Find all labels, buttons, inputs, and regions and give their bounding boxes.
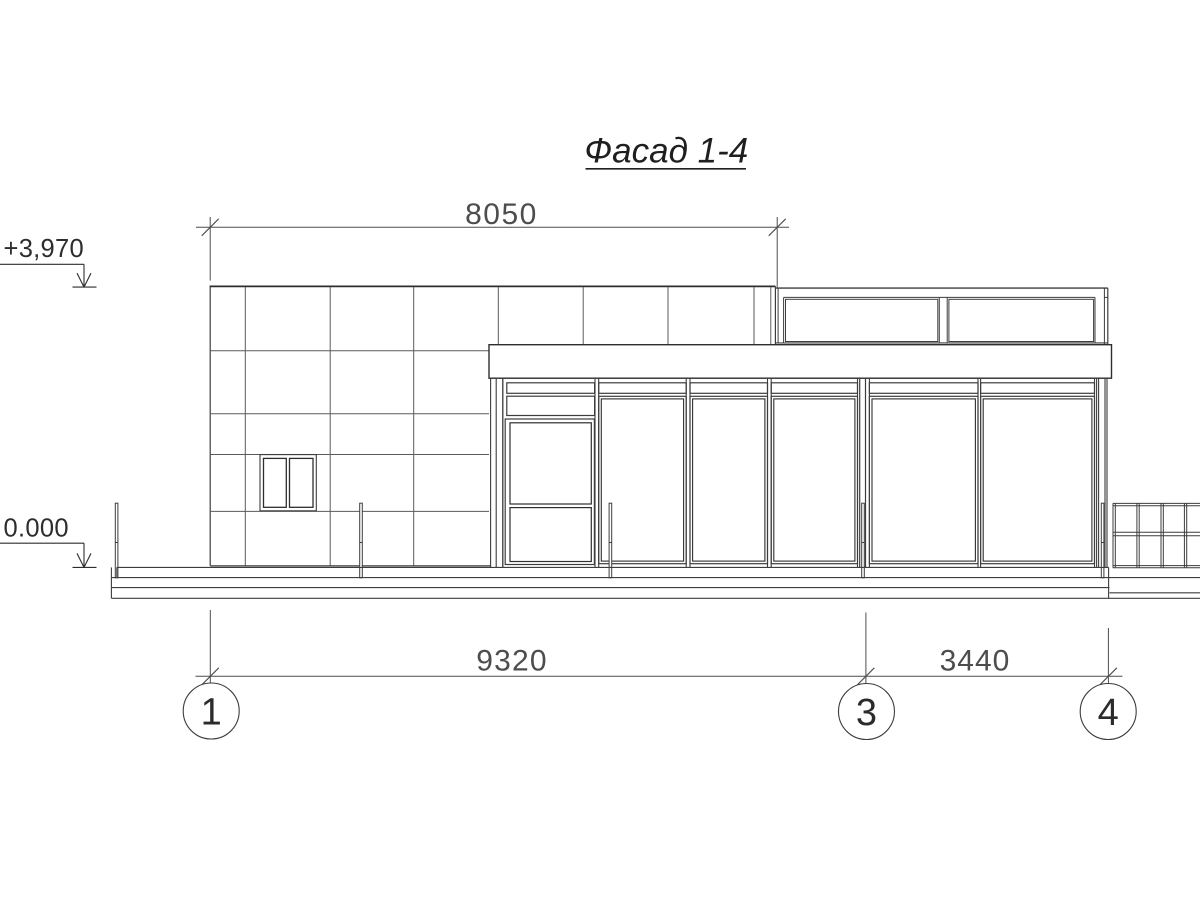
svg-text:0.000: 0.000: [4, 515, 69, 543]
svg-text:4: 4: [1098, 692, 1119, 734]
svg-text:8050: 8050: [465, 198, 538, 231]
svg-text:3: 3: [856, 692, 877, 734]
svg-text:+3,970: +3,970: [4, 235, 85, 263]
svg-text:9320: 9320: [476, 645, 548, 678]
svg-text:Фасад 1-4: Фасад 1-4: [584, 132, 748, 171]
svg-text:1: 1: [201, 692, 222, 734]
svg-text:3440: 3440: [940, 645, 1011, 678]
